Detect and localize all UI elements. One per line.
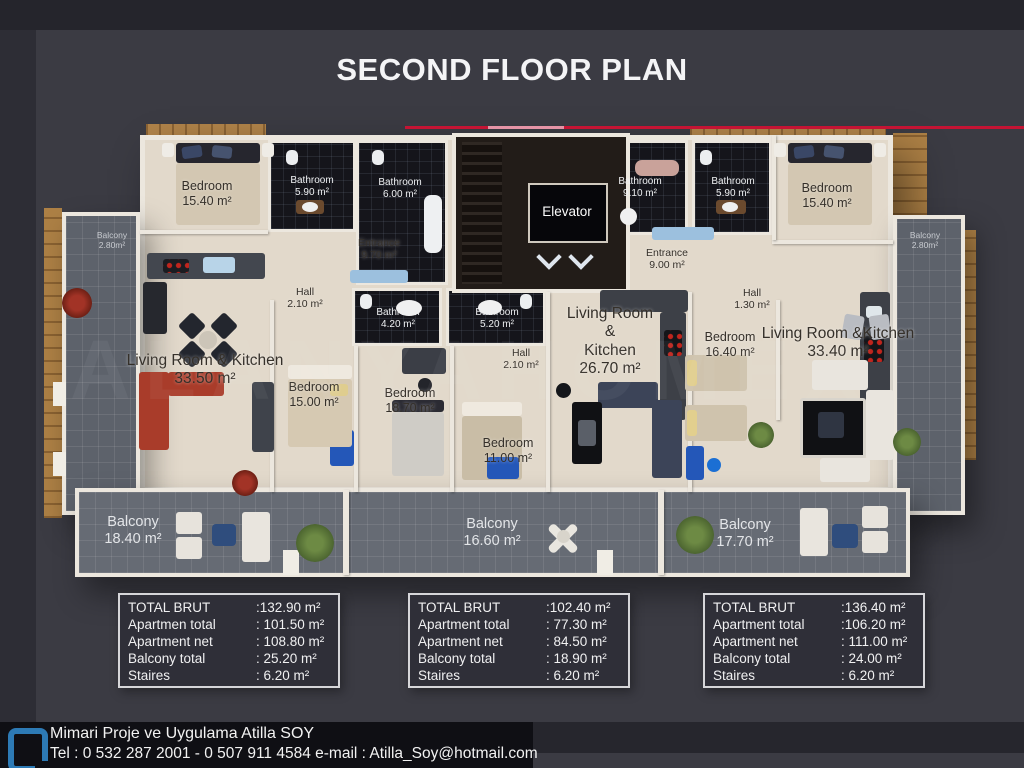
wall-segment: [772, 240, 893, 244]
spec-row: Apartmen total: 101.50 m²: [128, 616, 330, 633]
spec-row-value: : 6.20 m²: [841, 667, 894, 684]
spec-row-label: Balcony total: [418, 651, 495, 666]
spec-row-value: : 6.20 m²: [546, 667, 599, 684]
desk-blue: [686, 446, 704, 480]
pillow: [687, 360, 697, 386]
room-label-balcony: Balcony16.60 m²: [463, 516, 520, 550]
balcony-right: [893, 215, 965, 515]
coffee-table: [818, 412, 844, 438]
bed-pillows: [462, 402, 522, 416]
sofa-white: [812, 360, 868, 390]
toilet: [360, 294, 372, 309]
spec-row: Apartment total: 77.30 m²: [418, 616, 620, 633]
room-label-bedroom: Bedroom15.00 m²: [289, 380, 340, 410]
spec-row-value: : 101.50 m²: [256, 616, 324, 633]
pillow: [823, 145, 844, 159]
nightstand: [162, 143, 174, 157]
desk: [402, 348, 446, 374]
room-label-bathroom: Bathroom5.90 m²: [711, 176, 754, 200]
plant: [676, 516, 714, 554]
sink: [620, 208, 637, 225]
bed-pillows: [288, 365, 352, 379]
sofa-white: [866, 390, 894, 460]
spec-row-label: Apartment net: [128, 634, 213, 649]
side-table: [556, 383, 571, 398]
pillow: [687, 410, 697, 436]
room-label-bedroom: Bedroom11.00 m²: [483, 436, 534, 466]
stove-hob: [664, 330, 682, 356]
spec-row: Apartment net: 111.00 m²: [713, 633, 915, 650]
nightstand: [262, 143, 274, 157]
wall-segment: [354, 346, 358, 492]
logo-notch: [35, 761, 48, 768]
room-label-balcony: Balcony17.70 m²: [716, 517, 773, 551]
sofa-white: [820, 458, 870, 482]
spec-row-label: Apartment net: [418, 634, 503, 649]
room-label-bathroom: Bathroom6.00 m²: [378, 177, 421, 201]
top-frame-strip: [0, 0, 1024, 30]
spec-row: Staires: 6.20 m²: [713, 667, 915, 684]
footer-panel: Mimari Proje ve Uygulama Atilla SOY Tel …: [0, 722, 533, 768]
spec-row-value: : 84.50 m²: [546, 633, 607, 650]
spec-row-value: :102.40 m²: [546, 599, 611, 616]
room-label-bedroom: Bedroom18.70 m²: [385, 386, 436, 416]
plant: [893, 428, 921, 456]
room-label-bathroom: Bathroom9.10 m²: [618, 176, 661, 200]
spec-row-label: Apartment total: [418, 617, 510, 632]
sofa-navy: [598, 382, 658, 408]
spec-row-value: : 25.20 m²: [256, 650, 317, 667]
footer-architect-name: Mimari Proje ve Uygulama Atilla SOY: [50, 725, 314, 743]
room-label-bedroom: Bedroom16.40 m²: [705, 330, 756, 360]
architect-logo-icon: [8, 728, 48, 768]
apartment-3-spec-table: TOTAL BRUT:136.40 m²Apartment total:106.…: [703, 593, 925, 688]
spec-row-value: : 18.90 m²: [546, 650, 607, 667]
spec-row-label: Staires: [418, 668, 460, 683]
balcony-divider-wall: [658, 490, 664, 575]
spec-row-value: : 77.30 m²: [546, 616, 607, 633]
page-title: SECOND FLOOR PLAN: [0, 52, 1024, 88]
coffee-table: [578, 420, 596, 446]
spec-row-value: :136.40 m²: [841, 599, 906, 616]
nightstand: [774, 143, 786, 157]
balcony-pillar: [597, 550, 613, 575]
balcony-table: [832, 524, 858, 548]
toilet: [372, 150, 384, 165]
pillow: [793, 145, 814, 159]
room-label-entrance: Entrance9.70 m²: [358, 237, 400, 262]
red-reference-line-highlight: [488, 126, 564, 129]
sofa-navy: [652, 400, 682, 478]
room-label-bedroom: Bedroom15.40 m²: [182, 179, 233, 209]
balcony-chair: [176, 512, 202, 534]
apartment-2-spec-table: TOTAL BRUT:102.40 m²Apartment total: 77.…: [408, 593, 630, 688]
pillow: [211, 145, 232, 159]
spec-row: Balcony total: 25.20 m²: [128, 650, 330, 667]
kitchen-sink: [203, 257, 235, 273]
spec-row: Apartment net: 84.50 m²: [418, 633, 620, 650]
railing-post: [53, 452, 66, 476]
spec-row-label: Balcony total: [713, 651, 790, 666]
desk-chair: [707, 458, 721, 472]
apartment-1-spec-table: TOTAL BRUT:132.90 m²Apartmen total: 101.…: [118, 593, 340, 688]
room-label-balcony: Balcony2.80m²: [97, 230, 127, 250]
wood-deck: [893, 133, 927, 215]
stove-hob: [163, 259, 189, 273]
balcony-pillar: [283, 550, 299, 575]
spec-row-value: : 111.00 m²: [841, 633, 907, 650]
room-label-bathroom: Bathroom5.90 m²: [290, 175, 333, 199]
room-label-balcony: Balcony18.40 m²: [104, 514, 161, 548]
spec-row-value: :106.20 m²: [841, 616, 906, 633]
room-label-living-room-kitchen: Living Room &Kitchen33.40 m²: [762, 325, 915, 362]
spec-row: Balcony total: 18.90 m²: [418, 650, 620, 667]
footer-band: [533, 722, 1024, 753]
balcony-chair: [176, 537, 202, 559]
sink: [722, 202, 738, 212]
spec-row: Balcony total: 24.00 m²: [713, 650, 915, 667]
spec-row: TOTAL BRUT:102.40 m²: [418, 599, 620, 616]
spec-row-label: Balcony total: [128, 651, 205, 666]
spec-row: Apartment net: 108.80 m²: [128, 633, 330, 650]
room-label-bedroom: Bedroom15.40 m²: [802, 181, 853, 211]
room-label-balcony: Balcony2.80m²: [910, 230, 940, 250]
spec-row-label: TOTAL BRUT: [128, 600, 210, 615]
balcony-table-top: [557, 530, 570, 543]
spec-row-label: TOTAL BRUT: [713, 600, 795, 615]
spec-row-label: Apartment net: [713, 634, 798, 649]
spec-row-value: :132.90 m²: [256, 599, 321, 616]
plant: [748, 422, 774, 448]
plant: [296, 524, 334, 562]
spec-row-value: : 24.00 m²: [841, 650, 902, 667]
spec-row: Staires: 6.20 m²: [128, 667, 330, 684]
room-label-elevator: Elevator: [542, 204, 592, 220]
toilet: [286, 150, 298, 165]
dining-table: [199, 331, 217, 349]
spec-row-label: Staires: [128, 668, 170, 683]
spec-row: Staires: 6.20 m²: [418, 667, 620, 684]
room-label-bathroom: Bathroom5.20 m²: [475, 307, 518, 331]
bathtub: [635, 160, 679, 176]
balcony-sofa: [242, 512, 270, 562]
balcony-divider-wall: [343, 490, 349, 575]
wall-segment: [140, 230, 268, 234]
room-label-bathroom: Bathroom4.20 m²: [376, 307, 419, 331]
room-label-hall: Hall2.10 m²: [503, 347, 539, 372]
room-label-hall: Hall1.30 m²: [734, 287, 770, 312]
bathtub: [424, 195, 442, 253]
entry-bench: [350, 270, 408, 283]
railing-post: [53, 382, 66, 406]
balcony-chair: [862, 506, 888, 528]
wall-segment: [546, 292, 550, 492]
balcony-sofa: [800, 508, 828, 556]
room-label-hall: Hall2.10 m²: [287, 286, 323, 311]
spec-row-value: : 108.80 m²: [256, 633, 324, 650]
plant-red: [62, 288, 92, 318]
spec-row-label: Staires: [713, 668, 755, 683]
fridge: [143, 282, 167, 334]
balcony-chair: [862, 531, 888, 553]
balcony-table: [212, 524, 236, 546]
tv-console: [252, 382, 274, 452]
toilet: [700, 150, 712, 165]
room-label-living-room-kitchen: Living Room&Kitchen26.70 m²: [567, 305, 653, 378]
wall-segment: [450, 346, 454, 492]
spec-row: Apartment total:106.20 m²: [713, 616, 915, 633]
staircase: [462, 142, 502, 284]
spec-row-label: Apartment total: [713, 617, 805, 632]
sink: [302, 202, 318, 212]
toilet: [520, 294, 532, 309]
spec-row-label: Apartmen total: [128, 617, 216, 632]
room-label-living-room-kitchen: Living Room & Kitchen33.50 m²: [127, 352, 284, 389]
spec-row-value: : 6.20 m²: [256, 667, 309, 684]
left-frame-strip: [0, 30, 36, 722]
room-label-entrance: Entrance9.00 m²: [646, 247, 688, 272]
plant-red: [232, 470, 258, 496]
page: SECOND FLOOR PLAN: [0, 0, 1024, 768]
footer-contact-info: Tel : 0 532 287 2001 - 0 507 911 4584 e-…: [50, 745, 538, 763]
spec-row: TOTAL BRUT:136.40 m²: [713, 599, 915, 616]
bed: [392, 412, 444, 476]
spec-row-label: TOTAL BRUT: [418, 600, 500, 615]
spec-row: TOTAL BRUT:132.90 m²: [128, 599, 330, 616]
nightstand: [874, 143, 886, 157]
entry-bench: [652, 227, 714, 240]
